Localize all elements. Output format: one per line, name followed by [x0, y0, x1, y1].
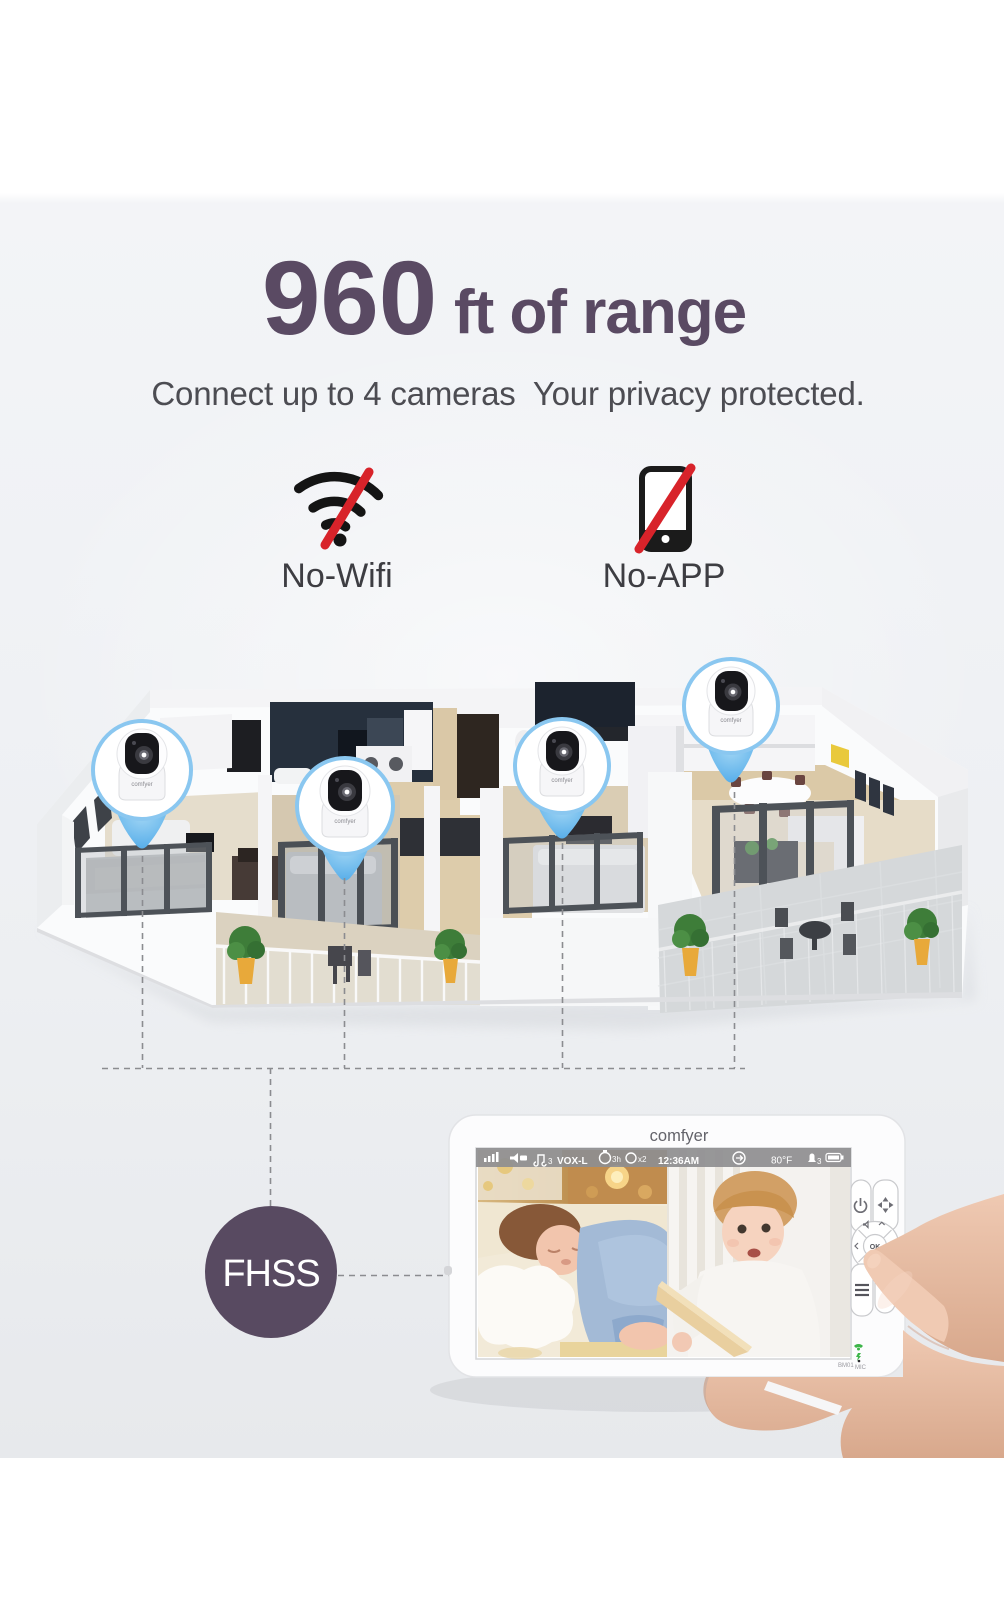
svg-text:3: 3 [817, 1157, 822, 1166]
svg-text:comfyer: comfyer [720, 718, 741, 724]
svg-text:3: 3 [548, 1157, 553, 1166]
svg-text:comfyer: comfyer [551, 778, 572, 784]
svg-text:80°F: 80°F [771, 1156, 792, 1167]
svg-text:x2: x2 [638, 1155, 647, 1164]
svg-text:comfyer: comfyer [334, 819, 355, 825]
svg-text:comfyer: comfyer [650, 1127, 709, 1145]
svg-text:12:36AM: 12:36AM [658, 1156, 699, 1167]
svg-text:VOX-L: VOX-L [557, 1156, 588, 1167]
svg-text:3h: 3h [612, 1155, 621, 1164]
svg-text:comfyer: comfyer [131, 782, 152, 788]
svg-text:BM01: BM01 [838, 1363, 854, 1369]
svg-text:FHSS: FHSS [222, 1253, 319, 1295]
svg-text:MIC: MIC [855, 1365, 867, 1371]
